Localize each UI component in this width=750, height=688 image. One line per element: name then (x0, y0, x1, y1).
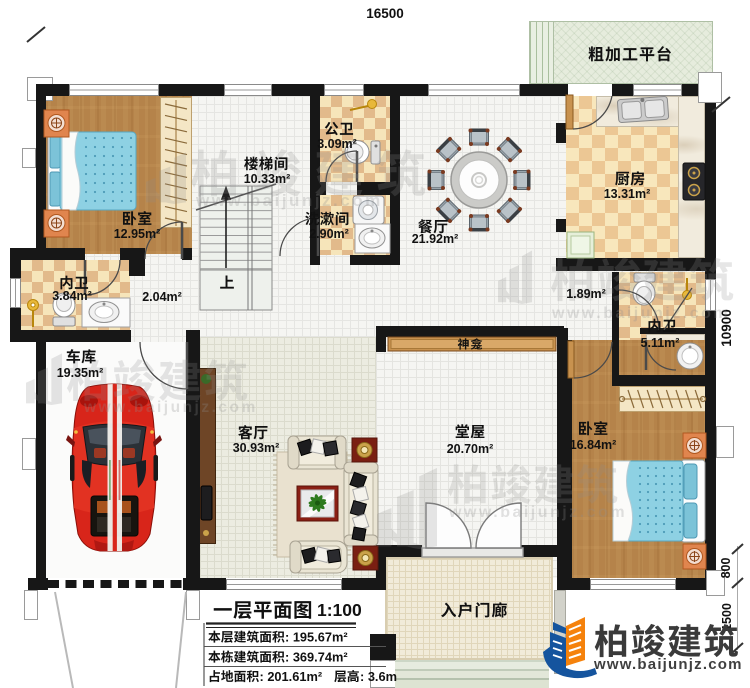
svg-text:13.31m²: 13.31m² (604, 187, 651, 201)
svg-text:www.baijunjz.com: www.baijunjz.com (83, 399, 258, 416)
svg-text:3.09m²: 3.09m² (317, 137, 357, 151)
svg-text:: 201.61m²: : 201.61m² (260, 669, 323, 684)
svg-text:800: 800 (719, 558, 733, 579)
svg-text:www.baijunjz.com: www.baijunjz.com (593, 656, 743, 673)
svg-text:www.baijunjz.com: www.baijunjz.com (195, 191, 383, 210)
svg-text:20.70m²: 20.70m² (447, 442, 494, 456)
svg-text:: 3.6m: : 3.6m (360, 669, 397, 684)
svg-text:10.33m²: 10.33m² (244, 172, 291, 186)
svg-text:30.93m²: 30.93m² (233, 441, 280, 455)
svg-text:: 195.67m²: : 195.67m² (285, 630, 348, 645)
svg-text:5.11m²: 5.11m² (641, 336, 680, 350)
svg-text:16500: 16500 (366, 6, 404, 21)
svg-text:2.04m²: 2.04m² (142, 290, 182, 304)
svg-text:: 369.74m²: : 369.74m² (285, 650, 348, 665)
svg-text:12.95m²: 12.95m² (114, 227, 161, 241)
svg-text:2.90m²: 2.90m² (309, 227, 349, 241)
svg-text:3.84m²: 3.84m² (52, 289, 92, 303)
svg-text:21.92m²: 21.92m² (412, 232, 459, 246)
svg-text:www.baijunjz.com: www.baijunjz.com (448, 504, 627, 521)
svg-text:19.35m²: 19.35m² (57, 366, 104, 380)
svg-text:1:100: 1:100 (317, 600, 362, 620)
svg-text:1.89m²: 1.89m² (566, 287, 606, 301)
svg-text:16.84m²: 16.84m² (570, 438, 617, 452)
svg-text:www.baijunjz.com: www.baijunjz.com (551, 305, 730, 322)
